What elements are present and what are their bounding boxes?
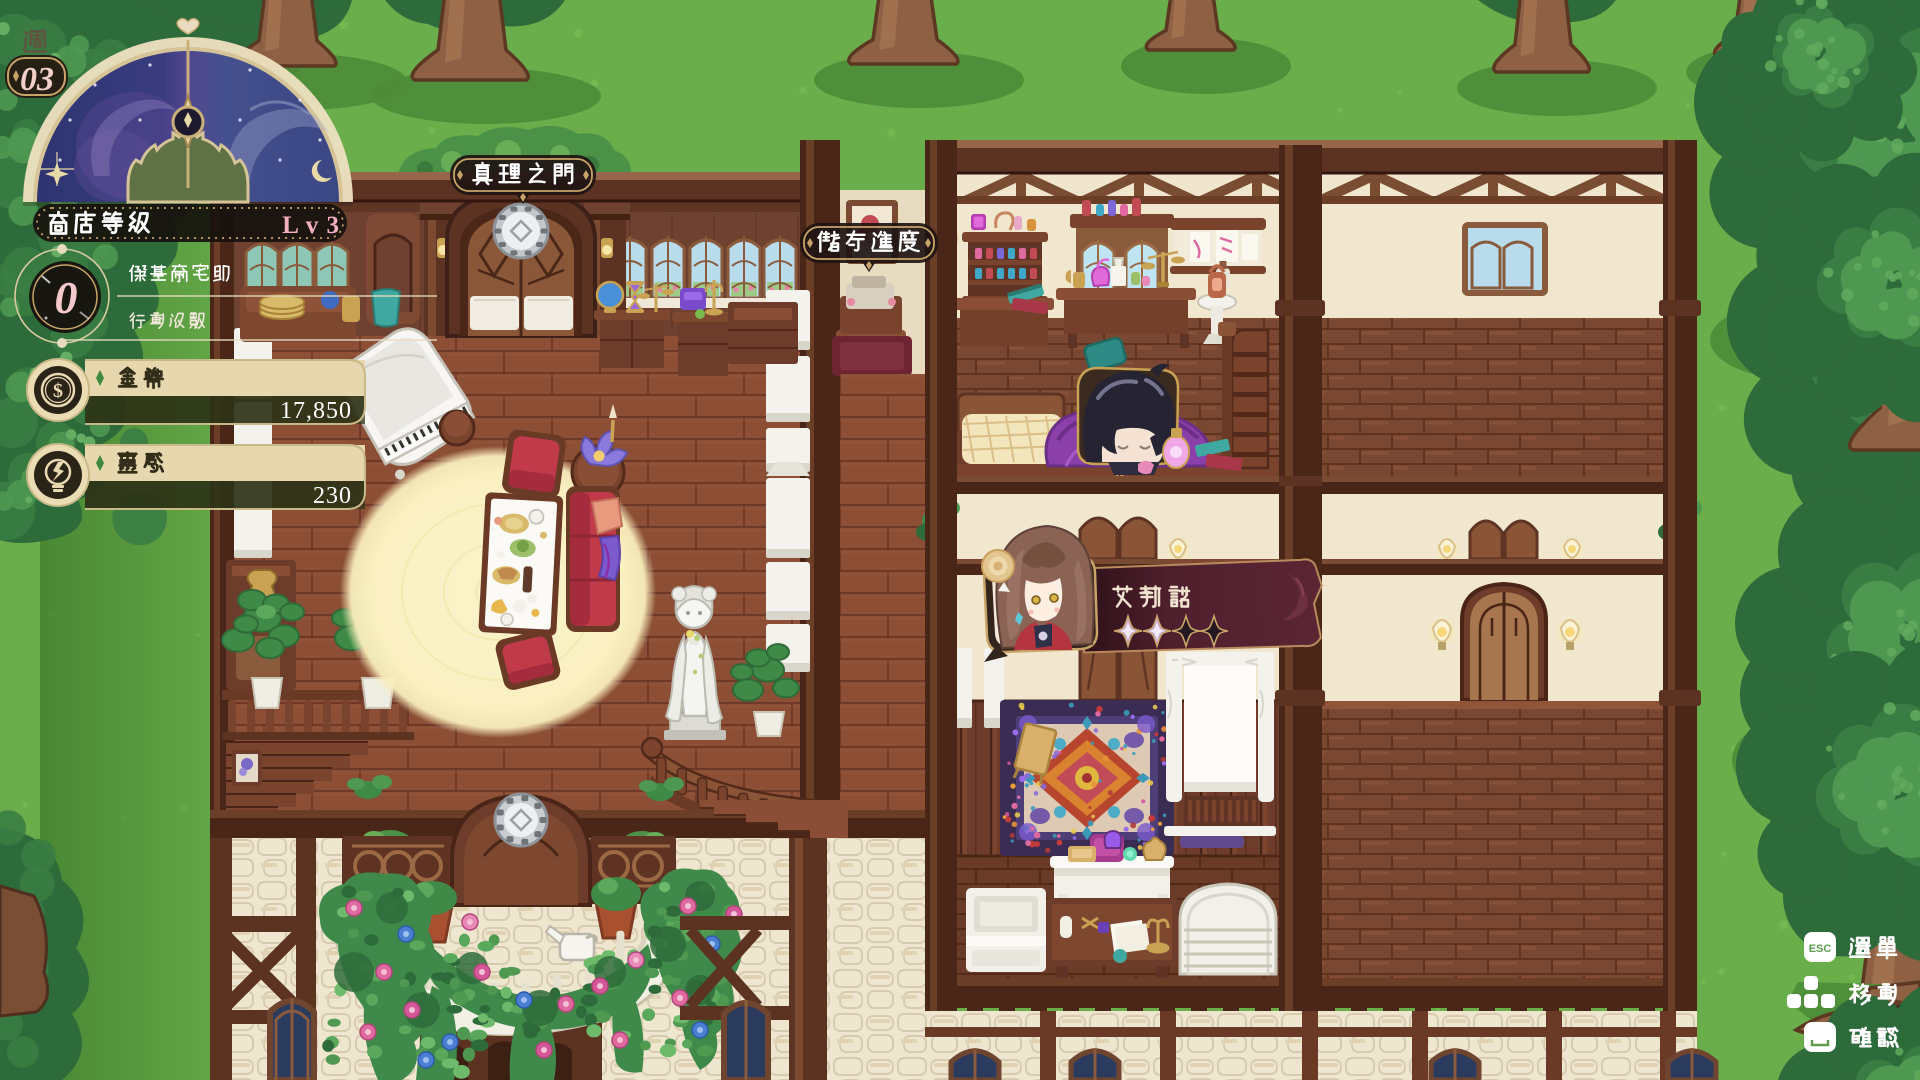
- svg-text:17,850: 17,850: [280, 398, 352, 424]
- svg-text:0: 0: [55, 272, 78, 323]
- svg-text:L v 3: L v 3: [282, 212, 340, 239]
- svg-text:$: $: [53, 380, 63, 402]
- svg-text:03: 03: [20, 61, 54, 98]
- svg-text:ESC: ESC: [1809, 943, 1832, 955]
- svg-text:230: 230: [313, 483, 352, 509]
